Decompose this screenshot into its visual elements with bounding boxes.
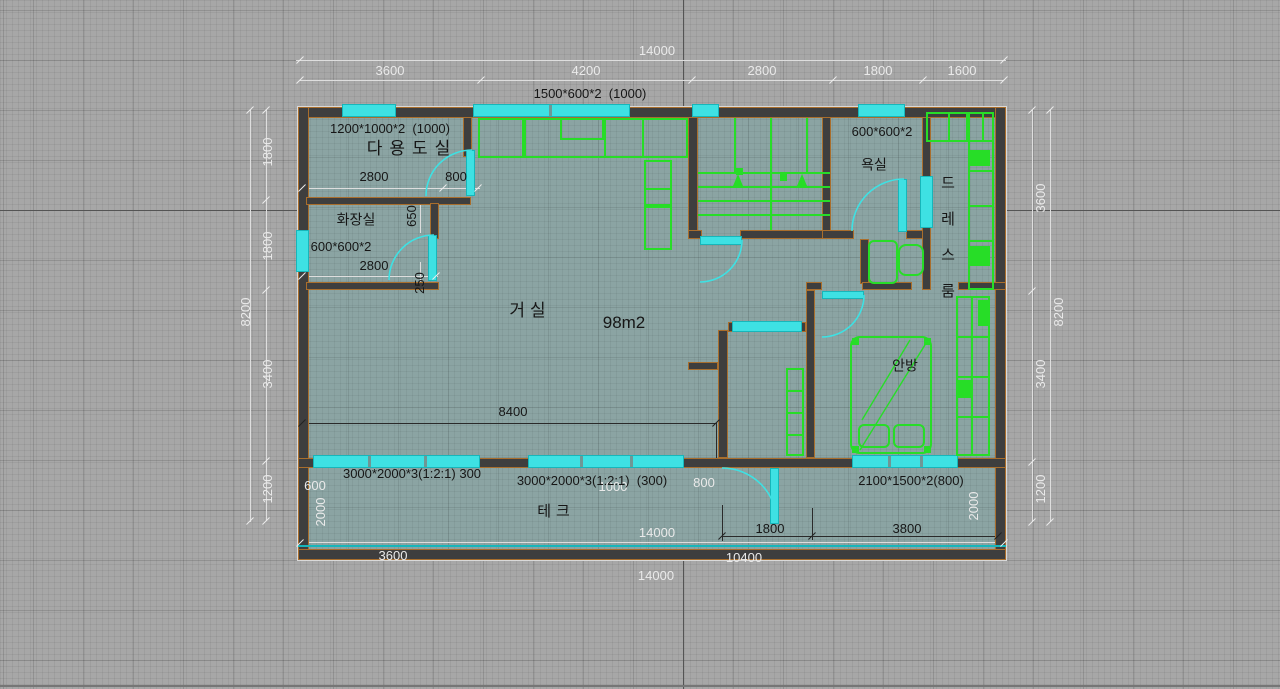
window[interactable] — [692, 104, 719, 117]
dimension-line[interactable] — [300, 80, 1004, 81]
door-leaf[interactable] — [898, 179, 907, 232]
dim-2000-right: 2000 — [967, 492, 981, 521]
furniture-block[interactable] — [924, 338, 931, 345]
furniture-block[interactable] — [958, 380, 972, 398]
dim-10400: 10400 — [726, 551, 762, 565]
furniture-line[interactable] — [770, 172, 772, 230]
dim-right-8200: 8200 — [1052, 298, 1066, 327]
furniture-line[interactable] — [786, 412, 804, 414]
furniture-line[interactable] — [966, 112, 968, 142]
dim-top-2800: 2800 — [748, 64, 777, 78]
window-spec-kitchen: 1500*600*2 (1000) — [534, 87, 647, 101]
dim-right-3600: 3600 — [1034, 184, 1048, 213]
furniture-line[interactable] — [770, 118, 772, 172]
window-mullion — [549, 105, 552, 116]
wall-segment[interactable] — [806, 282, 822, 290]
furniture-outline[interactable] — [478, 118, 526, 158]
window-spec-master: 2100*1500*2(800) — [858, 474, 964, 488]
wall-segment[interactable] — [740, 230, 830, 239]
furniture-line[interactable] — [644, 188, 672, 190]
wall-segment[interactable] — [688, 117, 698, 238]
window[interactable] — [920, 176, 933, 228]
dimension-line[interactable] — [716, 423, 717, 458]
dim-top-4200: 4200 — [572, 64, 601, 78]
dim-deck-14000: 14000 — [639, 526, 675, 540]
furniture-line[interactable] — [698, 214, 772, 216]
dim-2000-left: 2000 — [314, 498, 328, 527]
wall-segment[interactable] — [306, 197, 471, 205]
furniture-outline[interactable] — [868, 240, 898, 284]
furniture-line[interactable] — [698, 186, 772, 188]
dim-left-1800-b: 1800 — [261, 232, 275, 261]
wall-segment[interactable] — [430, 203, 439, 239]
furniture-line[interactable] — [956, 416, 990, 418]
furniture-line[interactable] — [956, 376, 990, 378]
window-mullion — [920, 456, 923, 467]
door-leaf[interactable] — [822, 291, 864, 299]
furniture-line[interactable] — [786, 434, 804, 436]
window-spec-toilet: 600*600*2 — [311, 240, 372, 254]
furniture-line[interactable] — [698, 200, 772, 202]
dim-600: 600 — [304, 479, 326, 493]
furniture-block[interactable] — [924, 446, 931, 453]
dim-top-total: 14000 — [639, 44, 675, 58]
furniture-line[interactable] — [968, 170, 994, 172]
furniture-line[interactable] — [971, 296, 973, 456]
furniture-outline[interactable] — [898, 244, 924, 276]
room-label-living: 거실 — [509, 302, 550, 320]
window[interactable] — [732, 321, 802, 332]
window-mullion — [630, 456, 633, 467]
furniture-line[interactable] — [956, 336, 990, 338]
wall-segment[interactable] — [806, 290, 815, 458]
dim-right-3400: 3400 — [1034, 360, 1048, 389]
window-spec-bath: 600*600*2 — [852, 125, 913, 139]
furniture-line[interactable] — [698, 172, 830, 174]
furniture-line[interactable] — [968, 140, 994, 142]
room-label-dress: 드 레 스 룸 — [941, 166, 955, 310]
furniture-line[interactable] — [982, 112, 984, 142]
dim-left-8200: 8200 — [239, 298, 253, 327]
cad-canvas[interactable]: 14000360042002800180016001500*600*2 (100… — [0, 0, 1280, 689]
dimension-line[interactable] — [302, 423, 717, 424]
window-spec-living-b: 3000*2000*3(1:2:1) (300) — [517, 474, 667, 488]
furniture-line[interactable] — [948, 112, 950, 142]
dim-utility-800: 800 — [445, 170, 467, 184]
room-label-deck: 테크 — [537, 504, 575, 520]
window[interactable] — [858, 104, 905, 117]
floor-area-label: 98m2 — [603, 314, 646, 332]
wall-segment[interactable] — [822, 117, 831, 238]
dimension-line[interactable] — [302, 188, 480, 189]
furniture-outline[interactable] — [604, 118, 644, 158]
dim-8400: 8400 — [499, 405, 528, 419]
dim-left-1800-a: 1800 — [261, 138, 275, 167]
wall-segment[interactable] — [995, 107, 1006, 560]
door-leaf[interactable] — [770, 468, 779, 524]
dim-deck-1800: 1800 — [756, 522, 785, 536]
dim-650: 650 — [405, 205, 419, 227]
dim-top-1600: 1600 — [948, 64, 977, 78]
furniture-block[interactable] — [852, 338, 859, 345]
furniture-line[interactable] — [806, 118, 808, 172]
window[interactable] — [852, 455, 958, 468]
dim-left-3400: 3400 — [261, 360, 275, 389]
dim-250: 250 — [413, 272, 427, 294]
room-label-utility: 다용도실 — [367, 140, 458, 158]
furniture-block[interactable] — [852, 446, 859, 453]
door-leaf[interactable] — [700, 236, 742, 245]
canvas-bottom-edge — [0, 685, 1280, 687]
dimension-line[interactable] — [298, 542, 1006, 543]
dim-bottom-3600: 3600 — [379, 549, 408, 563]
dim-toilet-2800: 2800 — [360, 259, 389, 273]
furniture-outline[interactable] — [560, 118, 604, 140]
furniture-line[interactable] — [786, 390, 804, 392]
room-label-bath: 욕실 — [861, 158, 887, 173]
furniture-block[interactable] — [970, 150, 990, 166]
room-label-master: 안방 — [892, 359, 918, 374]
window-spec-utility: 1200*1000*2 (1000) — [330, 122, 450, 136]
dim-utility-2800: 2800 — [360, 170, 389, 184]
furniture-line[interactable] — [772, 200, 830, 202]
dim-top-3600: 3600 — [376, 64, 405, 78]
room-label-toilet: 화장실 — [337, 213, 376, 228]
window[interactable] — [296, 230, 309, 272]
wall-segment[interactable] — [718, 330, 728, 458]
furniture-line[interactable] — [734, 118, 736, 172]
furniture-line[interactable] — [968, 205, 994, 207]
window[interactable] — [298, 545, 1006, 547]
dim-bottom-14000: 14000 — [638, 569, 674, 583]
furniture-block[interactable] — [736, 168, 743, 175]
dimension-line[interactable] — [296, 60, 1006, 61]
furniture-line[interactable] — [772, 186, 830, 188]
dim-deck-3800: 3800 — [893, 522, 922, 536]
window-mullion — [580, 456, 583, 467]
furniture-outline[interactable] — [893, 424, 925, 448]
dim-top-1800: 1800 — [864, 64, 893, 78]
furniture-block[interactable] — [978, 300, 988, 326]
furniture-block[interactable] — [780, 174, 787, 181]
window[interactable] — [528, 455, 684, 468]
window-spec-living-a: 3000*2000*3(1:2:1) 300 — [343, 467, 481, 481]
wall-segment[interactable] — [688, 362, 718, 370]
furniture-line[interactable] — [522, 118, 524, 158]
dim-right-1200: 1200 — [1034, 475, 1048, 504]
furniture-outline[interactable] — [858, 424, 890, 448]
furniture-line[interactable] — [772, 214, 830, 216]
dim-left-1200: 1200 — [261, 475, 275, 504]
wall-segment[interactable] — [822, 230, 854, 239]
furniture-outline[interactable] — [644, 206, 672, 250]
dim-800-bottom: 800 — [693, 476, 715, 490]
window[interactable] — [342, 104, 396, 117]
furniture-line[interactable] — [968, 240, 994, 242]
window-mullion — [888, 456, 891, 467]
door-leaf[interactable] — [466, 150, 475, 196]
furniture-block[interactable] — [970, 246, 990, 266]
furniture-outline[interactable] — [644, 160, 672, 206]
